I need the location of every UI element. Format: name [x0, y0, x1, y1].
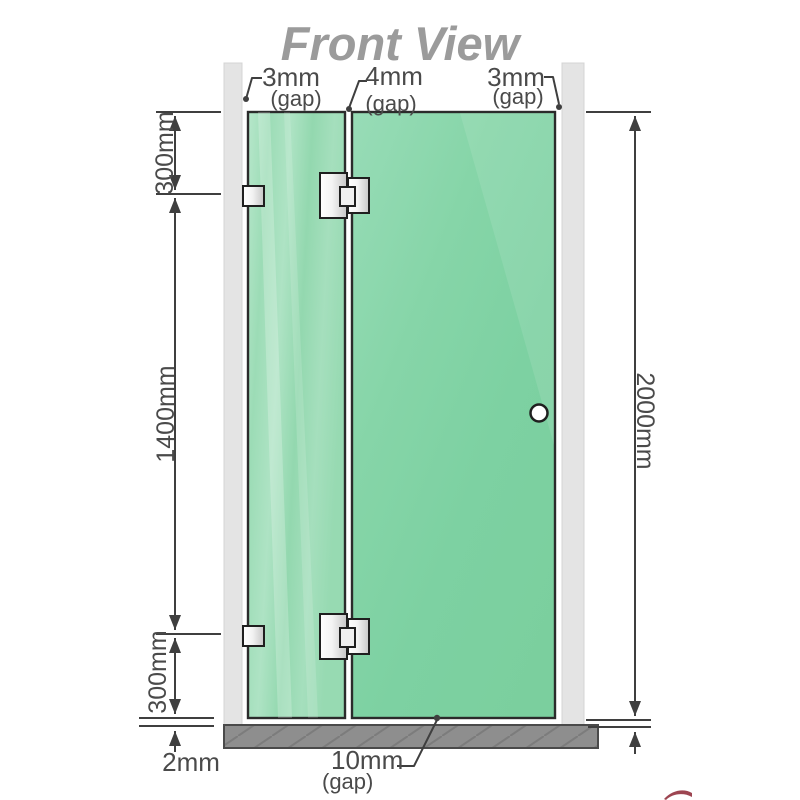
- wall-channel-right: [562, 63, 584, 725]
- dim-label-300-bottom: 300mm: [144, 630, 172, 713]
- leader-dot: [346, 106, 352, 112]
- gap-value: 4mm: [365, 61, 423, 91]
- dim-label-300-top: 300mm: [151, 111, 179, 194]
- diagram-canvas: Front View 300mm 1400mm 3: [0, 0, 800, 800]
- wall-bracket-top: [243, 186, 264, 206]
- dim-label-2000: 2000mm: [631, 372, 659, 469]
- wall-channel-left: [224, 63, 242, 725]
- gap-qualifier: (gap): [270, 86, 321, 111]
- hinge-top: [320, 173, 369, 218]
- red-watermark-fragment: [664, 790, 692, 800]
- callout-gap-top-left: 3mm (gap): [243, 62, 322, 111]
- leader-dot: [434, 715, 440, 721]
- door-handle-knob: [531, 405, 548, 422]
- dim-label-2mm: 2mm: [162, 747, 220, 777]
- front-view-diagram: Front View 300mm 1400mm 3: [0, 0, 800, 800]
- hinge-knuckle: [340, 187, 355, 206]
- floor-base: [224, 725, 598, 748]
- gap-qualifier: (gap): [492, 84, 543, 109]
- gap-qualifier: (gap): [365, 91, 416, 116]
- leader-dot: [243, 96, 249, 102]
- wall-bracket-bottom: [243, 626, 264, 646]
- callout-gap-top-right: 3mm (gap): [487, 62, 562, 110]
- leader-line: [544, 77, 559, 104]
- dim-label-1400: 1400mm: [152, 365, 180, 462]
- hinge-knuckle: [340, 628, 355, 647]
- dimension-left: 300mm 1400mm 300mm 2mm: [139, 111, 221, 777]
- leader-dot: [556, 104, 562, 110]
- gap-qualifier: (gap): [322, 769, 373, 794]
- hinge-bottom: [320, 614, 369, 659]
- leader-line: [246, 78, 262, 99]
- dimension-right: 2000mm: [586, 112, 659, 754]
- door-glass-panel: [352, 112, 555, 718]
